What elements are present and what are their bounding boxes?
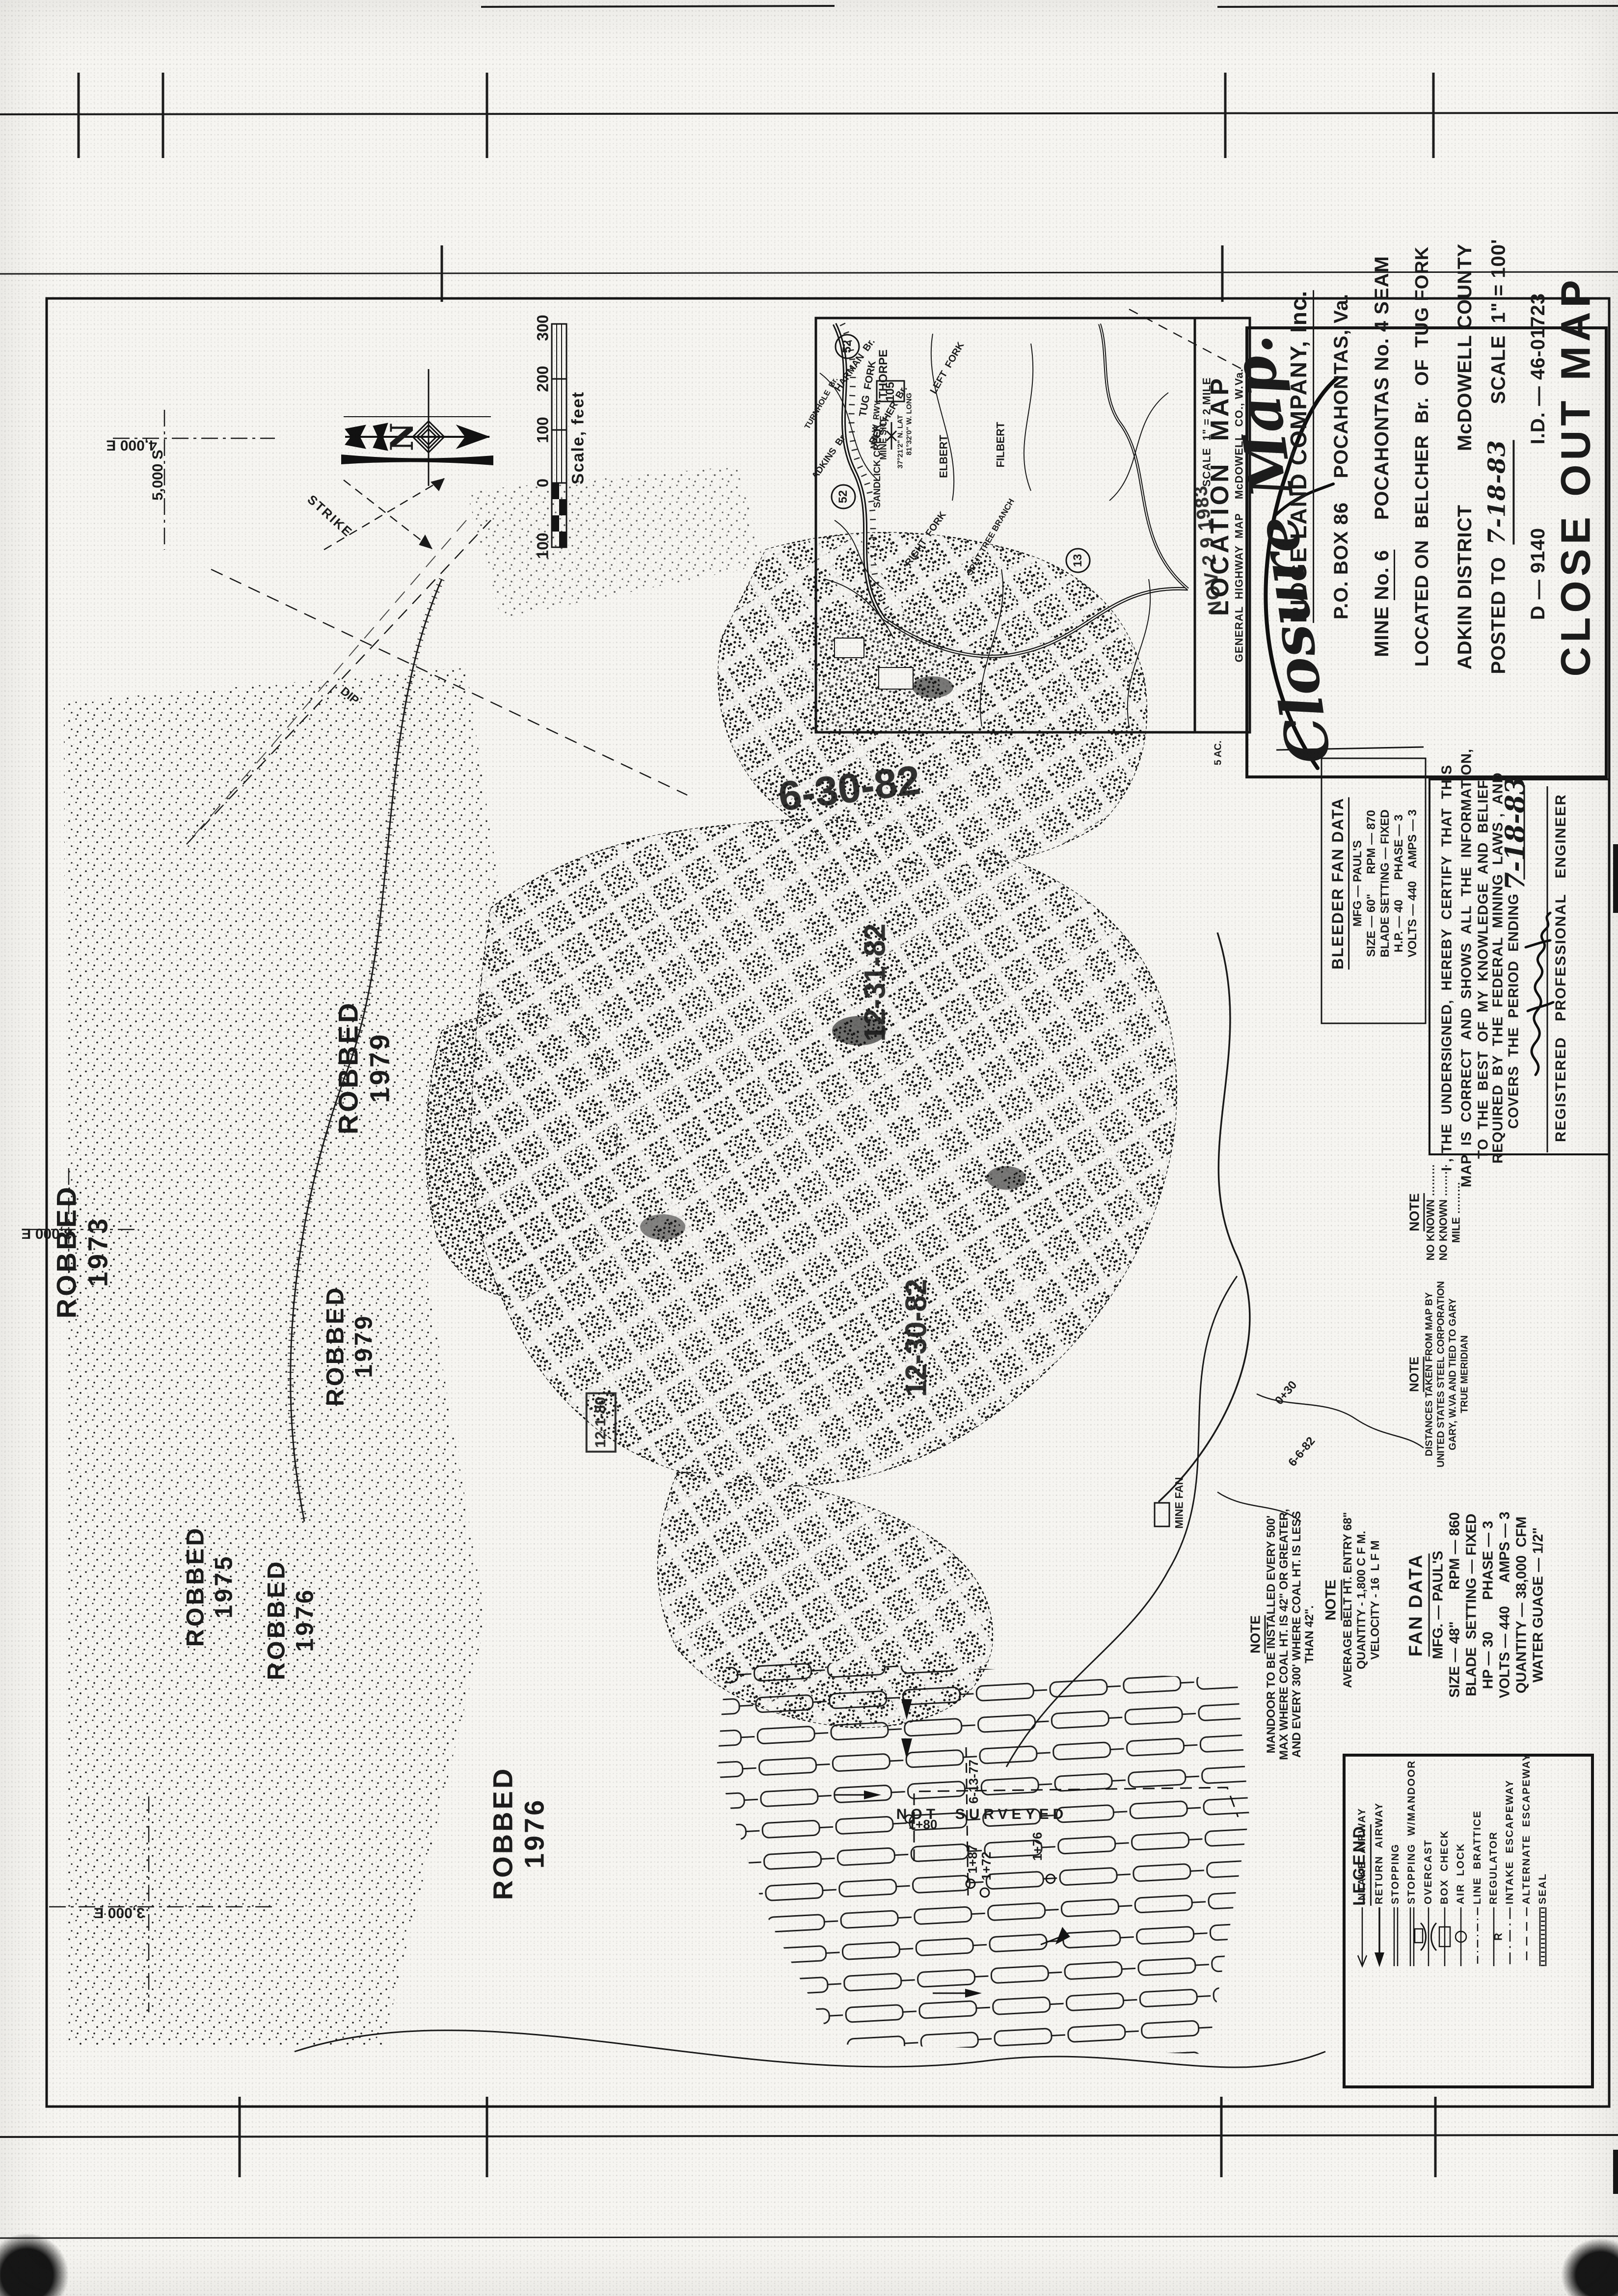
belt-note-line: AVERAGE BELT HT. ENTRY 68" [1341,1512,1355,1688]
certification-line: I , THE UNDERSIGNED, HEREBY CERTIFY THAT… [1439,765,1455,1171]
fan-data-line: WATER GUAGE — 1/2" [1530,1527,1546,1682]
wells-note-line: NO KNOWN ……… [1424,1164,1436,1261]
mine-fan-symbol [1155,1503,1169,1526]
legend-item-dashed-line: ALTERNATE ESCAPEWAY [1521,1757,1533,1904]
legend-item-overcast: OVERCAST [1423,1757,1434,1904]
north-letter: N [384,423,421,452]
steel-note-line: TRUE MERIDIAN [1459,1335,1471,1414]
date-stamp: 12-31-82 [858,924,892,1041]
company-name: RIDGE LAND COMPANY, Inc. [1286,290,1314,623]
legend-item-air-lock: AIR LOCK [1455,1757,1467,1904]
wells-note-line: NO KNOWN ……… [1437,1164,1449,1261]
robbed-area-label: ROBBED1979 [322,1285,378,1407]
legend-item-double-line: STOPPING [1390,1757,1402,1904]
map-label: 6-13-77 [967,1760,981,1804]
legend-item-seal-hatch: SEAL [1537,1757,1549,1904]
location-map-place-label: 81°32'0" W. LONG [905,393,913,455]
robbed-area-label: ROBBED1979 [333,1001,396,1135]
mandoor-note-line: MANDOOR TO BE INSTALLED EVERY 500' [1265,1516,1278,1754]
company-address: P.O. BOX 86 POCAHONTAS, Va. [1330,294,1352,619]
route-marker-label: 52 [836,490,850,504]
bleeder-fan-line: VOLTS — 440 AMPS — 3 [1406,809,1420,957]
district-county-line: ADKIN DISTRICT McDOWELL COUNTY [1454,243,1476,669]
signature-scribble [1526,913,1553,1075]
grid-coordinate-label: 5,000 S [150,450,167,500]
fan-data-line: MFG. — PAUL'S [1430,1551,1446,1659]
map-label: R [1492,1933,1504,1941]
legend-item-regulator: REGULATOR [1488,1757,1500,1904]
certification-period-date: 7-18-83 [1500,776,1530,891]
scale-bar-tick: 0 [534,479,552,487]
certification-line: TO THE BEST OF MY KNOWLEDGE AND BELIEF, [1475,777,1491,1159]
date-stamp: 12-30-82 [899,1279,933,1397]
map-label: 1+87 [966,1845,980,1874]
legend-item-dash-dot-line: LINE BRATTICE [1472,1757,1483,1904]
scale-bar-tick: 200 [534,366,552,392]
bleeder-fan-title: BLEEDER FAN DATA [1329,798,1349,970]
scale-bar-title: Scale, feet [568,391,588,484]
steel-note-title: NOTE [1407,1357,1425,1392]
certification-line: COVERS THE PERIOD ENDING [1506,893,1522,1129]
mandoor-note-title: NOTE [1247,1615,1266,1654]
location-map-place-label: FILBERT [994,422,1006,468]
steel-note-line: UNITED STATES STEEL CORPORATION [1436,1281,1447,1468]
belt-note-title: NOTE [1322,1579,1342,1620]
belt-note-line: VELOCITY - 16 L F M [1369,1540,1382,1659]
location-map-place-label: ELBERT [937,435,949,478]
scale-bar-tick: 100 [534,533,552,559]
legend-item-return-arrow: RETURN AIRWAY [1374,1757,1385,1904]
legend-title: LEGEND [1350,1824,1372,1906]
route-marker-label: 13 [1071,554,1085,567]
mine-workings-clusters [426,533,1176,1728]
map-label: MINE FAN [1173,1477,1185,1528]
bleeder-fan-line: H.P. — 40 PHASE — 3 [1392,815,1406,953]
steel-note-line: DISTANCES TAKEN FROM MAP BY [1424,1292,1435,1456]
robbed-area-label: ROBBED1976 [263,1559,319,1681]
legend-item-box-check: BOX CHECK [1439,1757,1451,1904]
certification-line: MAP IS CORRECT AND SHOWS ALL THE INFORMA… [1458,748,1475,1187]
fan-data-line: QUANTITY — 38,000 CFM [1513,1517,1530,1693]
wells-note-line: MILE ……… [1450,1182,1462,1243]
robbed-speckle-field [64,667,506,2047]
bleeder-fan-line: BLADE SETTING — FIXED [1378,809,1392,957]
bleeder-fan-line: MFG — PAUL'S [1351,840,1365,927]
fan-data-line: BLADE SETTING — FIXED [1463,1514,1480,1696]
robbed-area-label: ROBBED1976 [487,1766,551,1900]
engineer-title: REGISTERED PROFESSIONAL ENGINEER [1553,794,1570,1142]
fan-data-title: FAN DATA [1406,1553,1430,1656]
location-map-place-label: 5 AC. [1213,741,1224,765]
mandoor-note-line: THAN 42". [1303,1605,1317,1663]
scale-bar-tick: 100 [534,417,552,443]
wells-note-title: NOTE [1406,1193,1425,1231]
robbed-area-label: ROBBED1975 [182,1526,238,1647]
drawing-id-line: D — 9140 I.D. — 46-01723 [1527,293,1549,620]
sheet-title: CLOSE OUT MAP [1552,275,1600,676]
bleeder-fan-line: SIZE — 60" RPM — 870 [1365,810,1378,957]
map-label: 1+80 [909,1817,938,1832]
date-stamp: 12-1-80 [586,1392,617,1452]
grid-coordinate-label: 3,000 E [94,1904,144,1921]
location-map-place-label: 37°21'2" N. LAT [896,415,904,469]
fan-data-line: VOLTS — 440 AMPS — 3 [1497,1512,1513,1698]
map-label: 1+76 [1030,1832,1045,1861]
mandoor-note-line: MAX WHERE COAL HT. IS 42" OR GREATER, [1277,1509,1291,1760]
map-label: 1+72 [979,1852,994,1881]
scale-bar-tick: 300 [534,315,552,341]
location-map-place-label: SANDLICK CREEK [872,425,883,508]
route-marker-label: 52 [840,340,854,353]
fan-data-line: SIZE — 48" RPM — 860 [1447,1512,1463,1698]
belt-note-line: QUANTITY - 1,800 C F M. [1355,1531,1369,1669]
scanned-close-out-map-sheet: NOT SURVEYED1+801+871+721+766-13-770+306… [0,0,1618,2296]
robbed-area-label: ROBBED1973 [51,1185,114,1319]
legend-item-double-line-mandoor: STOPPING W/MANDOOR [1406,1757,1418,1904]
legend-item-dash-dot-long: INTAKE ESCAPEWAY [1504,1757,1516,1904]
route-marker-label: 105 [884,382,897,401]
mandoor-note-line: AND EVERY 300' WHERE COAL HT. IS LESS [1290,1511,1304,1758]
located-line: LOCATED ON BELCHER Br. OF TUG FORK [1412,246,1433,667]
steel-note-line: GARY, W.VA AND TIED TO GARY [1448,1298,1459,1450]
mine-line: MINE No. 6 POCAHONTAS No. 4 SEAM [1371,256,1393,657]
fan-data-line: HP — 30 PHASE — 3 [1480,1521,1496,1689]
posted-line: POSTED TO 7-18-83 SCALE 1" = 100' [1483,239,1510,674]
